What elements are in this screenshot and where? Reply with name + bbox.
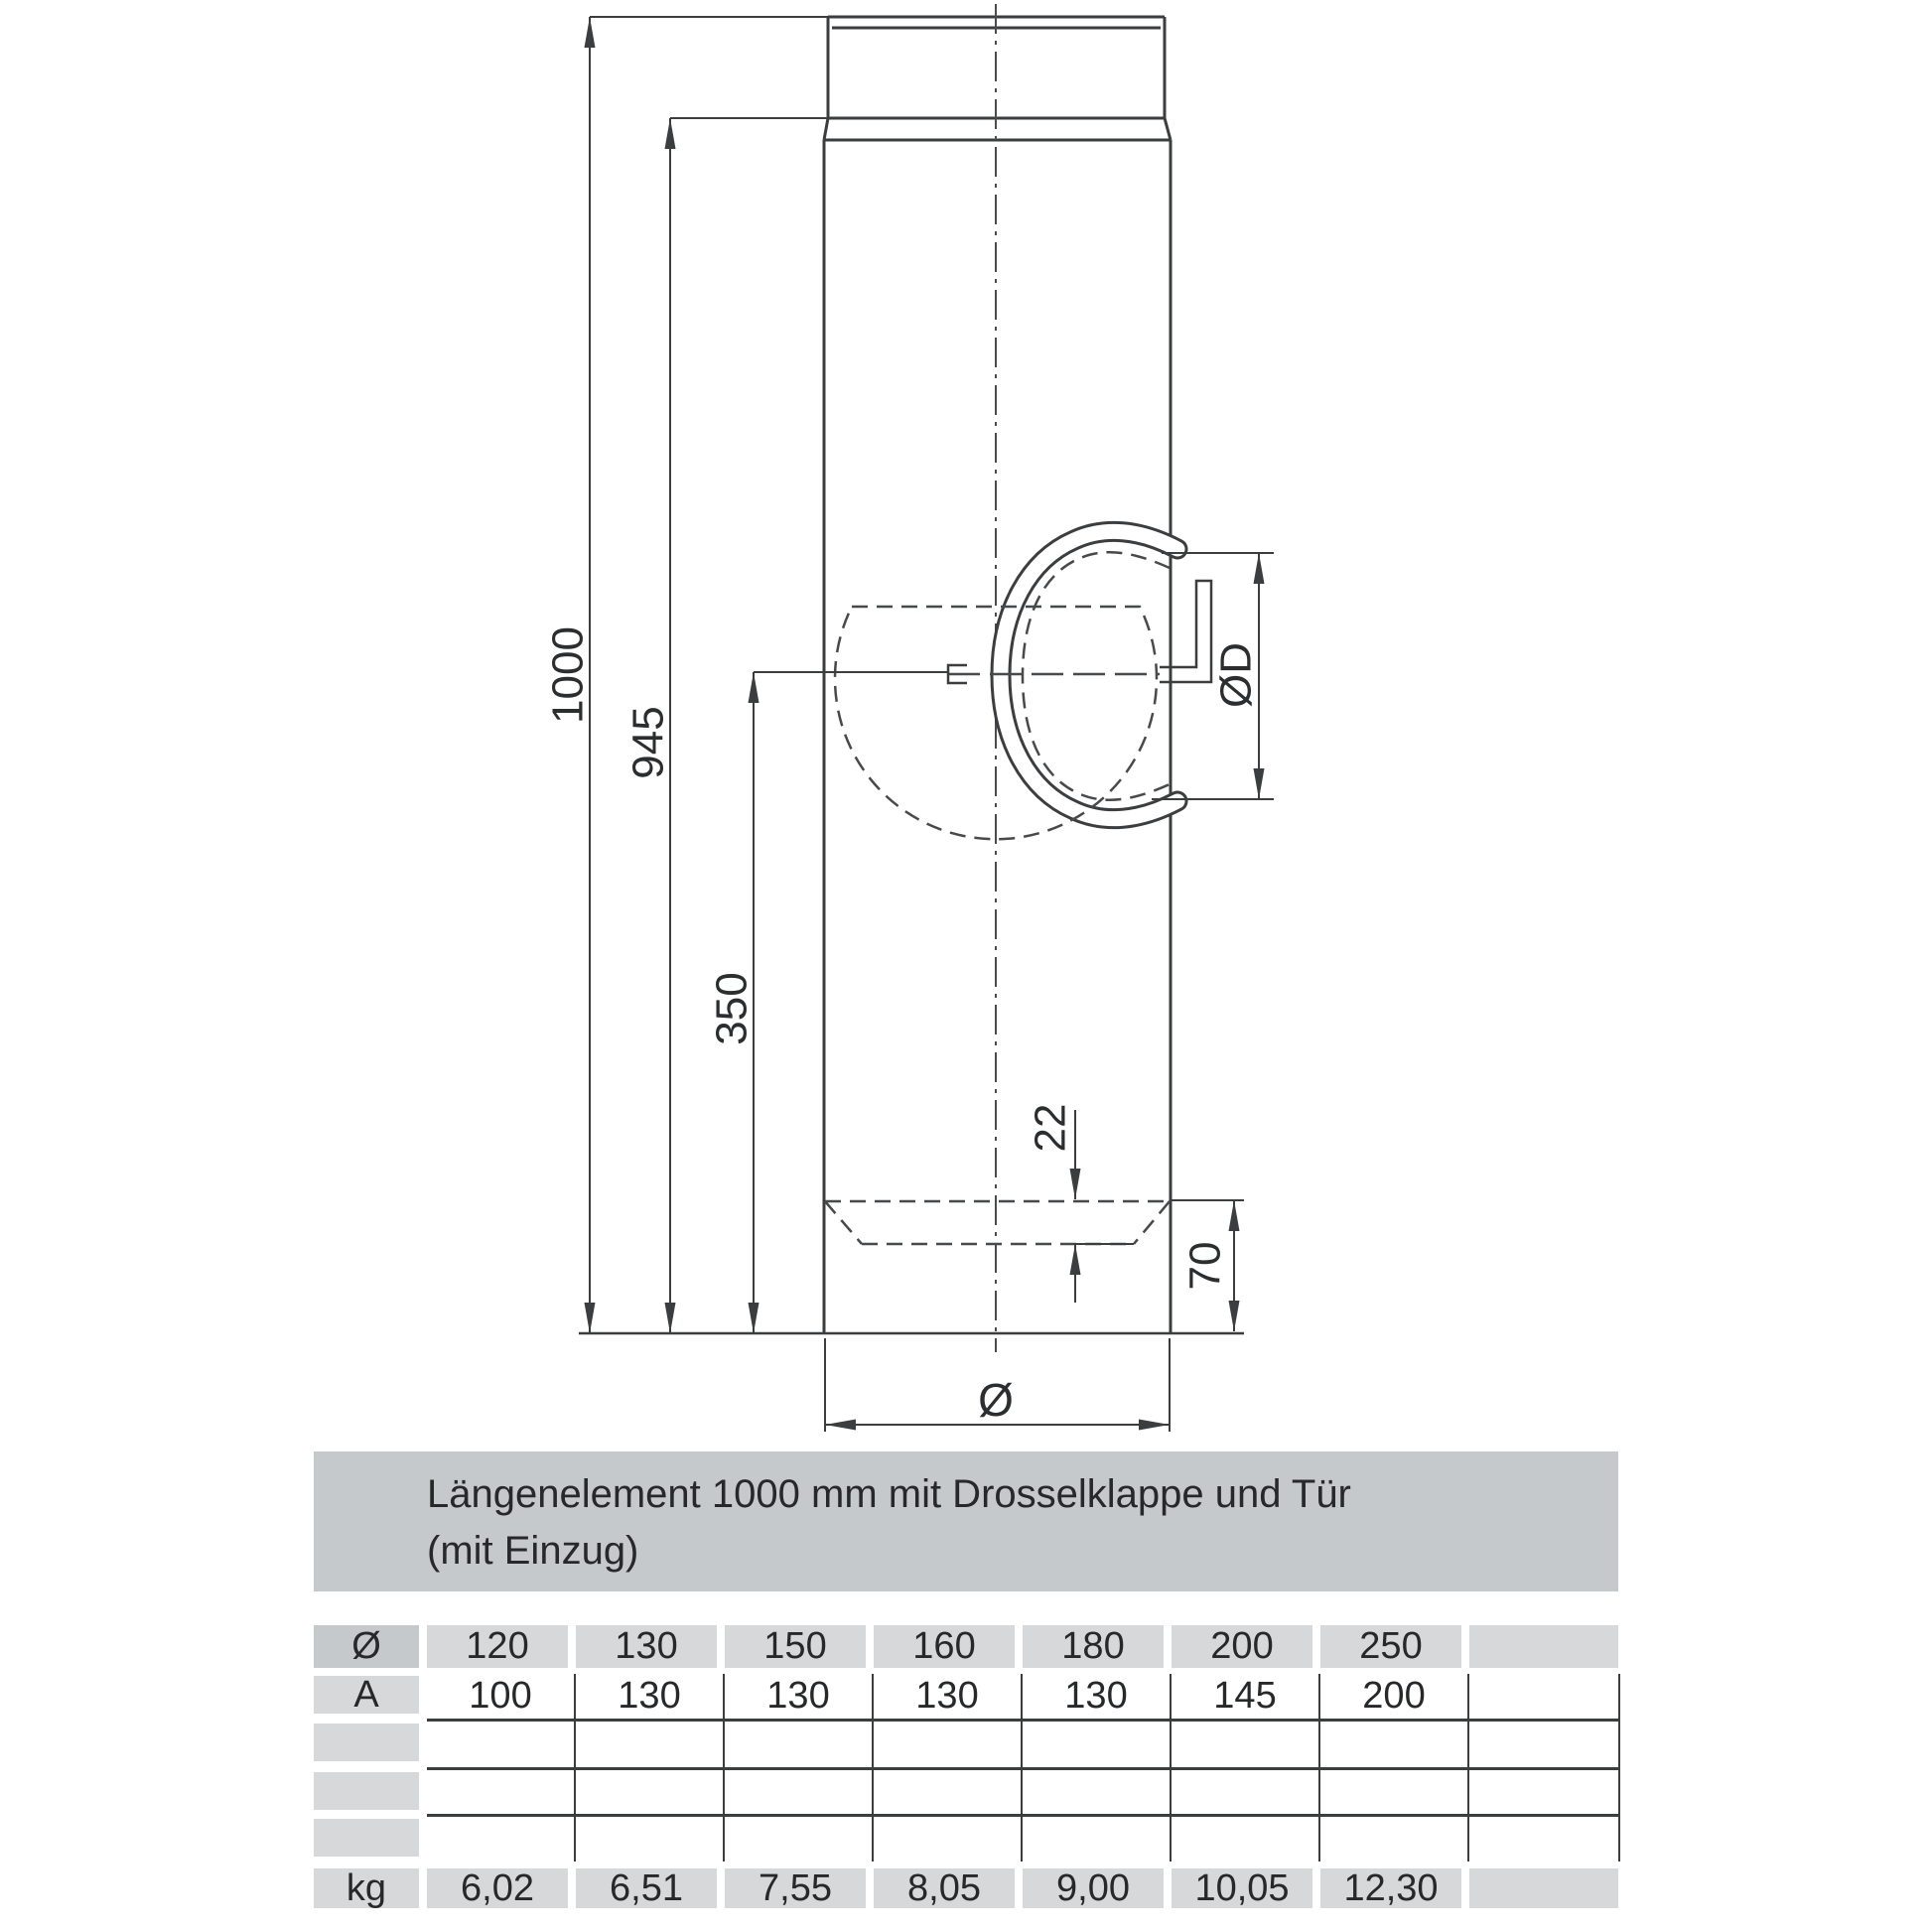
table-row-label bbox=[314, 1772, 419, 1810]
table-cell bbox=[1320, 1722, 1469, 1767]
dim-label-od: ØD bbox=[1212, 642, 1261, 708]
table-row-values: 120130150160180200250 bbox=[427, 1625, 1618, 1668]
table-row-label bbox=[314, 1819, 419, 1857]
damper-handle-grip bbox=[1160, 581, 1211, 682]
table-cell bbox=[874, 1770, 1023, 1814]
table-row-label: A bbox=[314, 1676, 419, 1714]
table-cell bbox=[427, 1817, 576, 1862]
table-cell bbox=[576, 1770, 725, 1814]
table-cell bbox=[1023, 1770, 1172, 1814]
title-box: Längenelement 1000 mm mit Drosselklappe … bbox=[314, 1451, 1618, 1591]
table-cell bbox=[1023, 1722, 1172, 1767]
table-row-kg: kg6,026,517,558,059,0010,0512,30 bbox=[314, 1868, 1620, 1908]
table-row-label bbox=[314, 1724, 419, 1761]
table-row-label: kg bbox=[314, 1868, 419, 1908]
table-cell: 6,02 bbox=[427, 1868, 568, 1908]
table-row-label: Ø bbox=[314, 1625, 419, 1668]
dim-label-945: 945 bbox=[624, 706, 673, 778]
table-cell bbox=[1023, 1817, 1172, 1862]
table-cell bbox=[576, 1817, 725, 1862]
table-cell bbox=[427, 1722, 576, 1767]
table-cell: 130 bbox=[725, 1674, 874, 1719]
damper-open-position-arc bbox=[1023, 552, 1170, 800]
dim-label-22: 22 bbox=[1027, 1104, 1075, 1153]
table-cell bbox=[725, 1770, 874, 1814]
table-row-values: 100130130130130145200 bbox=[427, 1674, 1620, 1722]
table-row-empty bbox=[314, 1722, 1620, 1770]
table-cell: 130 bbox=[576, 1674, 725, 1719]
table-cell bbox=[1172, 1770, 1320, 1814]
table-cell: 130 bbox=[874, 1674, 1023, 1719]
dim-total-length bbox=[590, 17, 828, 1333]
table-cell bbox=[1172, 1722, 1320, 1767]
table-cell: 10,05 bbox=[1172, 1868, 1312, 1908]
table-cell: 160 bbox=[874, 1625, 1015, 1668]
table-cell bbox=[427, 1770, 576, 1814]
table-row-empty bbox=[314, 1770, 1620, 1817]
page: 1000 945 350 ØD 22 70 bbox=[0, 0, 1932, 1932]
table-cell bbox=[874, 1722, 1023, 1767]
dim-945 bbox=[670, 118, 828, 1333]
spec-table: Ø120130150160180200250A10013013013013014… bbox=[314, 1625, 1620, 1908]
table-cell: 130 bbox=[1023, 1674, 1172, 1719]
table-cell bbox=[1172, 1817, 1320, 1862]
table-cell bbox=[1469, 1625, 1618, 1668]
table-cell: 12,30 bbox=[1320, 1868, 1461, 1908]
table-cell: 120 bbox=[427, 1625, 568, 1668]
table-cell bbox=[1469, 1770, 1620, 1814]
table-cell bbox=[1320, 1817, 1469, 1862]
title-line-2: (mit Einzug) bbox=[427, 1523, 1598, 1580]
table-row-diameter-header: Ø120130150160180200250 bbox=[314, 1625, 1620, 1668]
table-cell: 250 bbox=[1320, 1625, 1461, 1668]
table-row-A: A100130130130130145200 bbox=[314, 1674, 1620, 1722]
table-cell: 7,55 bbox=[725, 1868, 866, 1908]
table-cell bbox=[725, 1722, 874, 1767]
dim-label-350: 350 bbox=[708, 972, 757, 1044]
dim-label-1000: 1000 bbox=[544, 626, 593, 724]
table-cell: 145 bbox=[1172, 1674, 1320, 1719]
dim-label-70: 70 bbox=[1181, 1242, 1230, 1291]
table-cell: 180 bbox=[1023, 1625, 1164, 1668]
door-outline-dashed bbox=[825, 1201, 1170, 1244]
table-cell bbox=[1469, 1674, 1620, 1719]
table-row-values bbox=[427, 1722, 1620, 1770]
table-cell bbox=[1469, 1868, 1618, 1908]
table-cell: 9,00 bbox=[1023, 1868, 1164, 1908]
table-row-values bbox=[427, 1770, 1620, 1817]
table-cell: 8,05 bbox=[874, 1868, 1015, 1908]
table-cell: 100 bbox=[427, 1674, 576, 1719]
table-cell: 6,51 bbox=[576, 1868, 717, 1908]
dim-350 bbox=[754, 672, 948, 1333]
table-row-empty bbox=[314, 1817, 1620, 1862]
table-row-values: 6,026,517,558,059,0010,0512,30 bbox=[427, 1868, 1618, 1908]
title-line-1: Längenelement 1000 mm mit Drosselklappe … bbox=[427, 1466, 1598, 1523]
table-cell: 150 bbox=[725, 1625, 866, 1668]
technical-drawing: 1000 945 350 ØD 22 70 bbox=[0, 0, 1932, 1449]
table-cell bbox=[1469, 1817, 1620, 1862]
table-cell: 200 bbox=[1320, 1674, 1469, 1719]
table-cell bbox=[725, 1817, 874, 1862]
table-cell: 130 bbox=[576, 1625, 717, 1668]
table-cell bbox=[1469, 1722, 1620, 1767]
table-cell bbox=[874, 1817, 1023, 1862]
table-cell bbox=[576, 1722, 725, 1767]
dim-label-diameter: Ø bbox=[978, 1374, 1014, 1426]
table-cell: 200 bbox=[1172, 1625, 1312, 1668]
table-row-values bbox=[427, 1817, 1620, 1862]
table-cell bbox=[1320, 1770, 1469, 1814]
